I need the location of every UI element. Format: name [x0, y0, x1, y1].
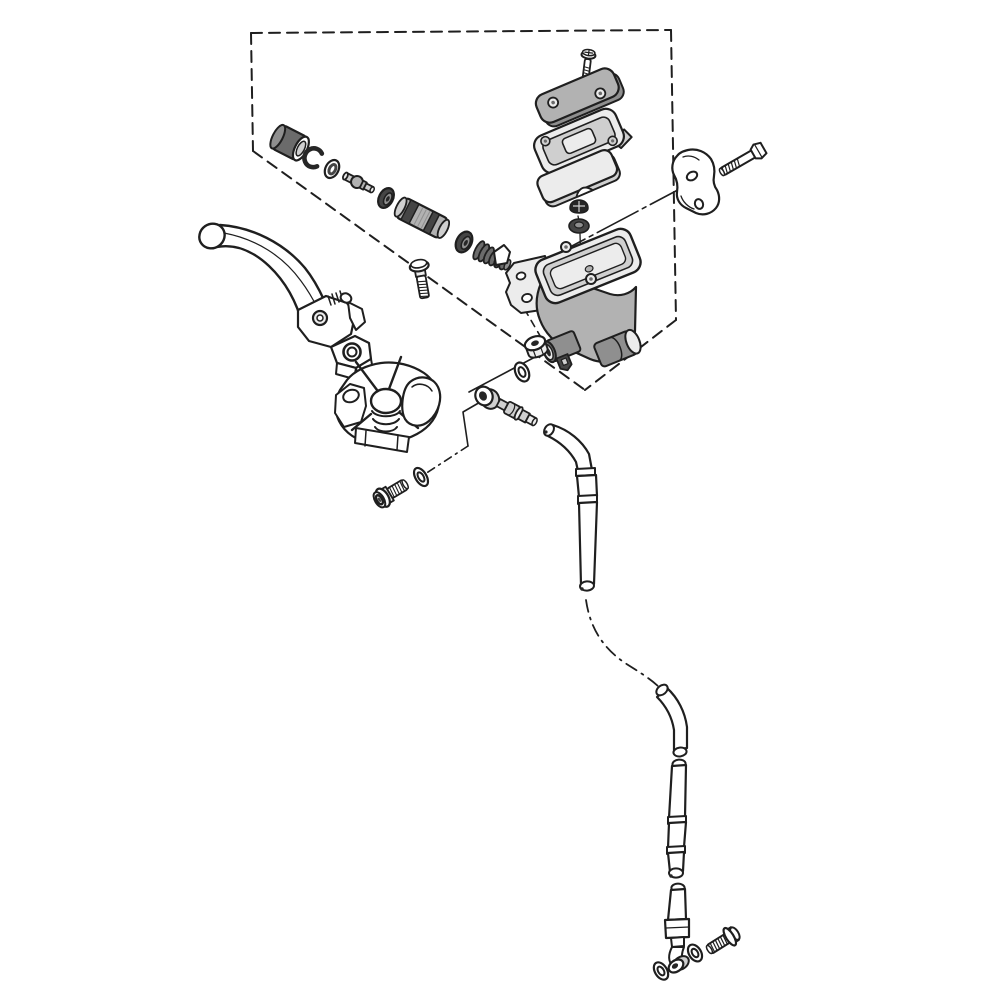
hose-middle	[654, 683, 687, 758]
master-cylinder-body	[494, 226, 644, 376]
hose-upper	[542, 422, 597, 591]
parts-diagram-canvas	[0, 0, 1000, 1000]
grommet	[569, 219, 589, 233]
banjo-washer-inner	[651, 960, 671, 982]
primary-cup	[375, 185, 397, 210]
hose-hidden-route	[586, 600, 660, 688]
piston	[392, 195, 452, 240]
banjo-bolt	[702, 923, 743, 959]
clamp-bolt	[716, 141, 767, 180]
push-rod	[341, 170, 377, 196]
brake-lever	[194, 219, 373, 379]
hose-joint	[472, 384, 539, 429]
sealing-washer	[512, 360, 532, 384]
hose-lower	[665, 759, 689, 947]
reservoir-plug	[570, 200, 588, 213]
mount-washer	[411, 466, 431, 489]
mount-bolt	[370, 475, 412, 511]
exploded-diagram	[0, 0, 1000, 1000]
secondary-cup	[452, 229, 475, 255]
clamp-bracket	[672, 149, 719, 214]
spacer-washer	[322, 158, 342, 181]
